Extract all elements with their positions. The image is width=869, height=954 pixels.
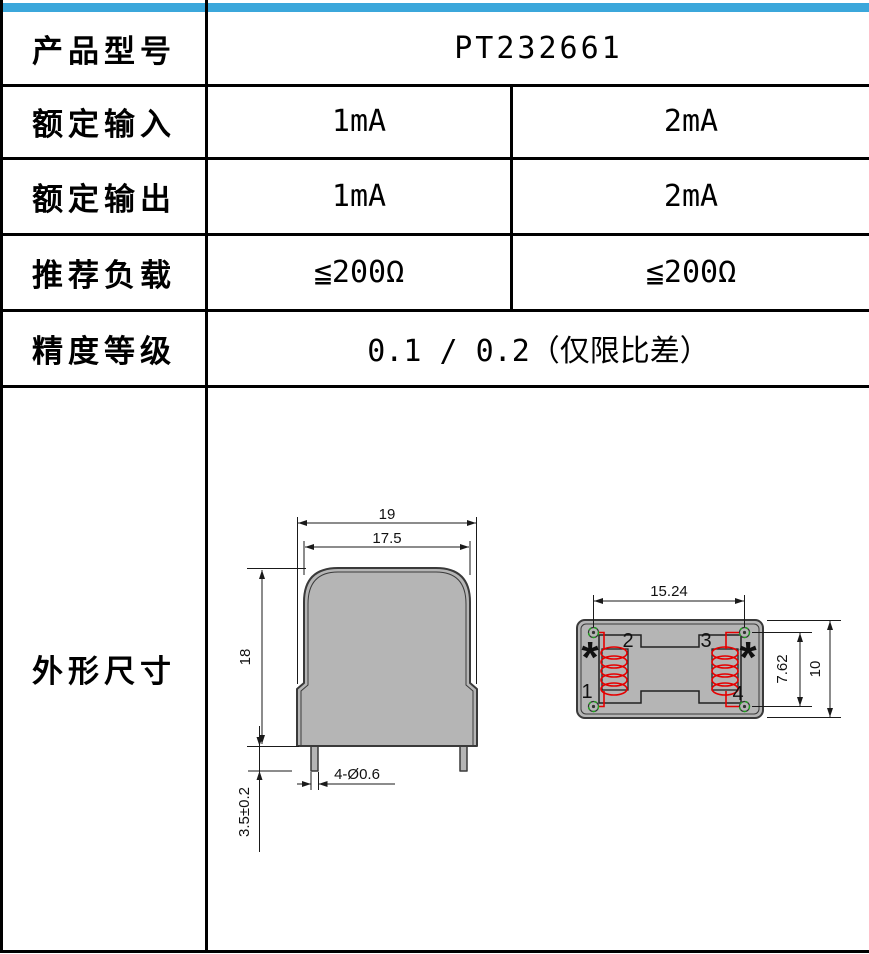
front-pin-right	[460, 746, 467, 771]
label-recommended-load: 推荐负载	[2, 234, 207, 310]
dim-pin-length	[247, 726, 299, 852]
pin-label-4: 4	[732, 683, 743, 705]
value-recommended-load-2: ≦200Ω	[512, 234, 869, 310]
front-pin-left	[311, 746, 318, 771]
row-rated-output: 额定输出 1mA 2mA	[2, 158, 869, 234]
dim-text-17-5: 17.5	[372, 530, 401, 547]
dim-text-pin-diameter: 4-Ø0.6	[334, 766, 380, 783]
row-rated-input: 额定输入 1mA 2mA	[2, 85, 869, 158]
value-recommended-load-1: ≦200Ω	[207, 234, 512, 310]
label-accuracy-class: 精度等级	[2, 310, 207, 386]
row-recommended-load: 推荐负载 ≦200Ω ≦200Ω	[2, 234, 869, 310]
pin-1-marker	[589, 701, 599, 711]
value-rated-output-2: 2mA	[512, 158, 869, 234]
dimension-drawing: 19 17.5	[208, 388, 866, 945]
front-body	[297, 568, 477, 746]
dim-text-10: 10	[807, 660, 824, 677]
row-outline-dimensions: 外形尺寸	[2, 386, 869, 951]
label-product-model: 产品型号	[2, 13, 207, 85]
front-view: 19 17.5	[236, 506, 477, 852]
pin-label-2: 2	[622, 630, 633, 652]
polarity-mark-left: *	[581, 633, 599, 682]
accent-bar	[3, 3, 205, 12]
value-accuracy-class: 0.1 / 0.2（仅限比差）	[207, 310, 869, 386]
top-view: 2 3 1 4 * * 15.24	[577, 583, 841, 718]
row-accuracy-class: 精度等级 0.1 / 0.2（仅限比差）	[2, 310, 869, 386]
accent-bar	[208, 3, 869, 12]
row-model: 产品型号 PT232661	[2, 13, 869, 85]
dim-text-18: 18	[237, 648, 254, 665]
pin-label-3: 3	[700, 630, 711, 652]
dim-text-19: 19	[379, 506, 396, 523]
dim-text-15-24: 15.24	[650, 583, 688, 600]
dim-text-pin-length: 3.5±0.2	[236, 787, 253, 837]
accent-strip-left	[2, 0, 207, 13]
value-rated-input-2: 2mA	[512, 85, 869, 158]
pin-label-1: 1	[581, 681, 592, 703]
spec-table: 产品型号 PT232661 额定输入 1mA 2mA 额定输出 1mA 2mA …	[0, 0, 869, 953]
label-outline-dimensions: 外形尺寸	[2, 386, 207, 951]
value-rated-output-1: 1mA	[207, 158, 512, 234]
accent-strip-row	[2, 0, 869, 13]
outline-drawing-cell: 19 17.5	[207, 386, 869, 951]
label-rated-output: 额定输出	[2, 158, 207, 234]
value-product-model: PT232661	[207, 13, 869, 85]
dim-text-7-62: 7.62	[774, 654, 791, 683]
accent-strip-right	[207, 0, 869, 13]
label-rated-input: 额定输入	[2, 85, 207, 158]
polarity-mark-right: *	[739, 633, 757, 682]
value-rated-input-1: 1mA	[207, 85, 512, 158]
